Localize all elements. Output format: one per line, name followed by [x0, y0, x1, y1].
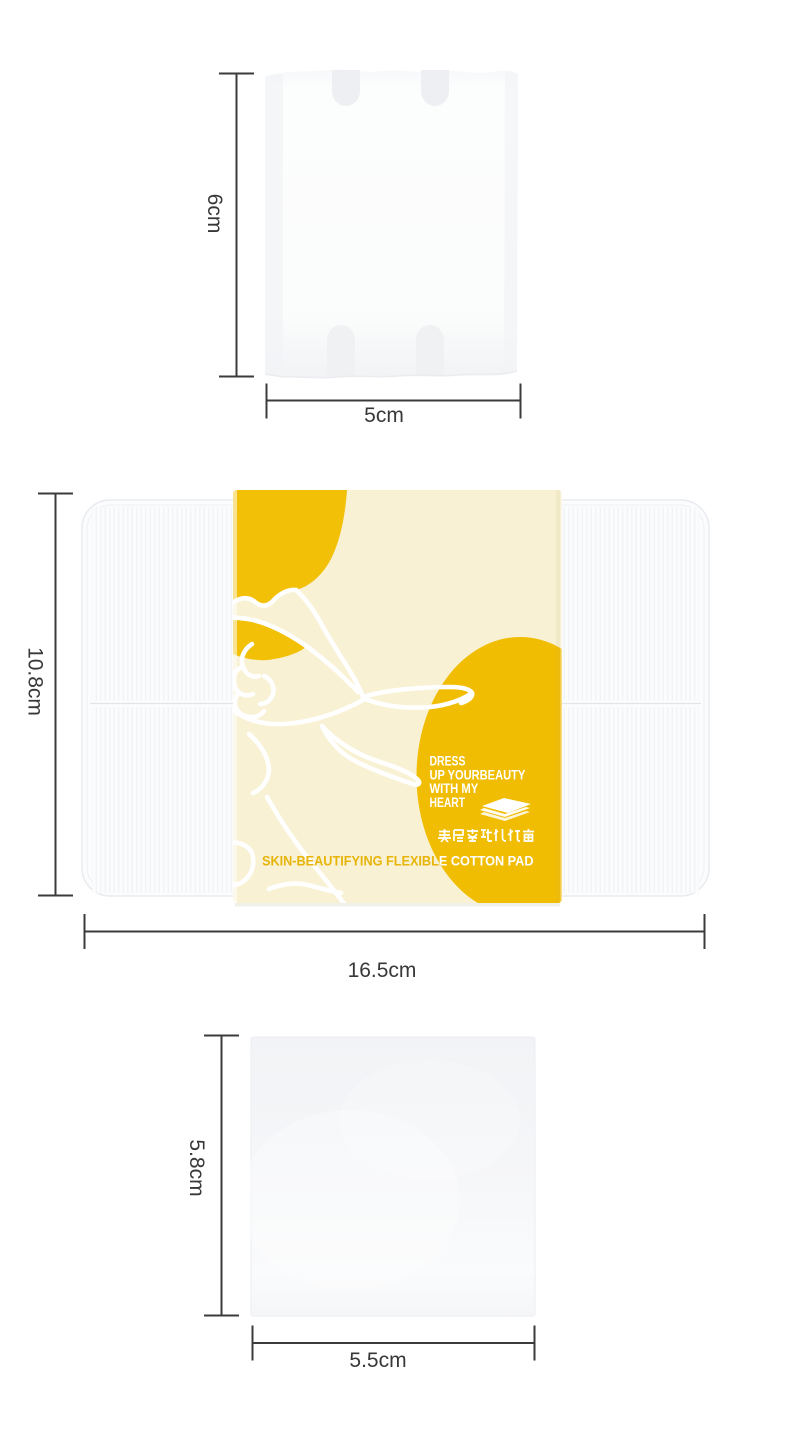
- svg-text:16.5cm: 16.5cm: [348, 959, 417, 982]
- svg-text:5.5cm: 5.5cm: [349, 1349, 406, 1372]
- svg-text:5cm: 5cm: [364, 404, 404, 427]
- svg-text:DRESS: DRESS: [430, 754, 466, 769]
- svg-text:5.8cm: 5.8cm: [185, 1139, 208, 1196]
- svg-text:HEART: HEART: [430, 795, 466, 810]
- svg-text:6cm: 6cm: [203, 194, 226, 234]
- svg-text:10.8cm: 10.8cm: [23, 647, 46, 716]
- svg-text:WITH MY: WITH MY: [430, 781, 479, 796]
